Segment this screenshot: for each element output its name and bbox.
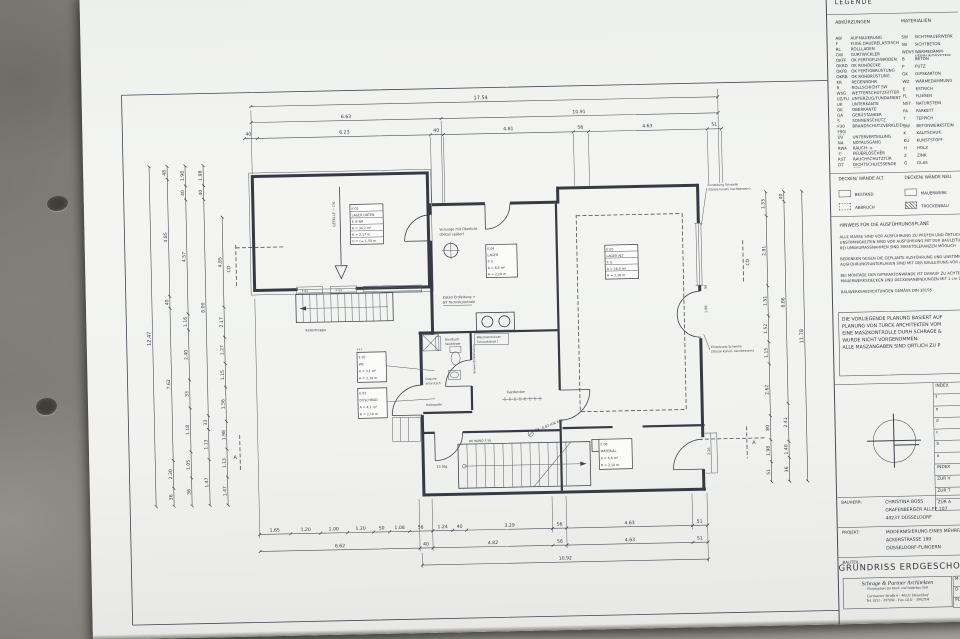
dim-label: 56 <box>418 525 424 531</box>
sheet-title: GRUNDRISS ERDGESCHOSS <box>839 561 959 573</box>
material-term: GLAS <box>917 159 960 167</box>
dim-label: 1.55 <box>760 199 766 209</box>
legend-col2-header: MATERIALIEN <box>901 18 931 24</box>
dim-label: 1.40 <box>783 444 789 454</box>
hinweis-line: BAUWERKSABDICHTUNGEN GEMÄSS DIN 18195 <box>841 287 960 295</box>
architect-stamp: Schrage & Partner Architekten Planungsbü… <box>843 576 953 609</box>
legend-new-header: DECKEN/ WÄNDE NEU. <box>904 175 952 181</box>
dim-label: 1.13 <box>203 439 209 449</box>
room-stamp-row: F: B NR <box>352 220 364 224</box>
dim-label: 12.47 <box>146 332 152 346</box>
dim-label: 36 <box>784 466 790 472</box>
dim-label: 1.16 <box>183 317 189 327</box>
projekt-block: PROJEKT: MODERNISIERUNG EINES MEHRFAMILI… <box>838 525 960 558</box>
dim-label: 2.40 <box>183 350 189 360</box>
dim-label: 4.57 <box>181 252 187 262</box>
room-stamp-row: E 06 <box>600 442 607 446</box>
dim-label: 1.52 <box>763 324 769 334</box>
room-stamp-row: MATERIAL <box>601 449 617 453</box>
slope-label: GEFÄLLE ~ 1% <box>331 201 337 227</box>
right-room-demolition-outline <box>576 214 686 412</box>
dim-label: 1.20 <box>300 527 310 533</box>
daten-note: Daten Erdleitung + <box>443 295 476 300</box>
dim-label: 4.63 <box>642 123 652 129</box>
waesche-label: Schutzklasse I <box>477 339 499 343</box>
note-line: ALLE MASZANGABEN SIND ORTLICH ZU P <box>842 342 960 352</box>
dim-label: 51 <box>697 536 703 542</box>
index-row: ZUR V <box>935 475 960 488</box>
material-key: G <box>904 160 917 168</box>
index-row: b <box>934 440 960 453</box>
dim-label: 80 <box>765 425 771 431</box>
dim-label: 36 <box>168 494 174 500</box>
projekt-city: DÜSSELDORF-FLINGERN <box>886 542 960 552</box>
dim-label: 2.30 <box>168 469 174 479</box>
dim-label: 51 <box>697 519 703 525</box>
kellertreppe-label: Kellertreppe <box>305 328 326 332</box>
north-symbol-box <box>835 382 935 497</box>
dim-label: 1.56 <box>220 399 226 409</box>
daten-note: NT Technikzentrale <box>443 300 475 305</box>
room-stamp-row: DUSCHBAD <box>359 398 378 402</box>
dimensions-bottom: 1.65 1.20 1.00 1.20 50 1.08 56 1.24 40 3… <box>260 519 709 569</box>
annotations: Vorsorge mit Oberlicht (Detail später) D… <box>439 182 757 460</box>
punch-hole-top <box>46 195 69 213</box>
window-label: F 01 <box>302 289 309 293</box>
legend-row: DTDICHTSCHLIESSENDE TÜR <box>838 161 904 168</box>
haltegriffe-label: Haltegriffe <box>426 403 442 407</box>
window-note: (Stürze künstl. nachbessern) <box>711 349 754 354</box>
legend-title: LEGENDE <box>835 0 873 7</box>
garderobe-label: Garderobe <box>507 390 525 394</box>
dim-label: 6.62 <box>335 543 345 549</box>
dim-label: 56 <box>557 522 563 528</box>
dim-label: 8.86 <box>780 297 786 307</box>
room-stamp-row: WC <box>359 362 365 366</box>
room-stamp-row: H = 2,10 m <box>607 273 625 277</box>
room-stamp-row: A = 34,2 m² <box>352 226 372 230</box>
dim-label: 6.23 <box>339 129 349 135</box>
dim-label: 51 <box>766 469 772 475</box>
room-stamp-row: F: E <box>607 260 613 264</box>
dim-label: 1.98 <box>766 446 772 456</box>
room-stamp-row: E 02 <box>359 355 366 359</box>
legend-panel: LEGENDE ABKÜRZUNGEN MATERIALIEN AWAUFMAU… <box>826 0 960 624</box>
room-stamp-row: F: E <box>488 260 494 264</box>
dim-label: 48 <box>162 170 168 176</box>
dim-label: 17.54 <box>473 95 487 101</box>
index-row: INDEX <box>935 463 960 476</box>
projekt-label: PROJEKT: <box>842 530 860 535</box>
index-row: INDEX <box>933 382 960 395</box>
laundry-appliances: Wäschetrockner Schutzklasse I <box>474 312 515 345</box>
mauerwerk-swatch <box>905 189 917 196</box>
dusche-label: antirutsch <box>426 381 441 385</box>
room-stamp-row: H = 2,17 m <box>352 232 370 236</box>
room-stamp-row: E 01 <box>351 207 358 211</box>
plan-sheet: 17.54 6.63 10.91 40 6.23 40 4.81 56 4.63… <box>79 0 960 639</box>
dim-label: 40 <box>423 541 429 547</box>
abbruch-label: ABBRUCH <box>855 205 875 210</box>
dim-label: 1.15 <box>220 370 226 380</box>
handtuch-label: heizkörper <box>445 342 462 346</box>
dimensions-top: 17.54 6.63 10.91 40 6.23 40 4.81 56 4.63… <box>244 90 722 138</box>
room-stamp-row: LAGER <box>487 253 499 257</box>
dim-label: 56 <box>577 125 583 131</box>
planning-note-box: DIE VORLIEGENDE PLANUNG BASIERT AUF PLAN… <box>838 310 960 377</box>
index-table: INDEXfedcbaINDEXZUR VZUR TZUR A <box>933 381 960 511</box>
dim-label: 40 <box>457 524 463 530</box>
plan-number-row: PLAN <box>953 597 960 608</box>
stair-count-label: 13 Stg <box>436 465 447 469</box>
trockenbau-swatch <box>905 202 917 209</box>
punch-hole-bottom <box>35 397 58 417</box>
dim-label: 4.85 <box>217 257 223 267</box>
scale-row: M <box>953 575 960 587</box>
section-label-cd: CD <box>745 258 751 265</box>
wall-dim-label: 2.26 <box>707 447 711 455</box>
wall-dim-label: 1.88 <box>704 305 708 313</box>
dim-label: 4.81 <box>503 126 513 132</box>
hinweis-title: HINWEIS FÜR DIE AUSFÜHRUNGSPLÄNE <box>839 221 929 228</box>
hinweis-text: ALLE MASSE SIND VOR AUSFÜHRUNG ZU PRÜFEN… <box>840 232 960 295</box>
stamp-plus: (+) <box>357 347 362 351</box>
dim-label: 6.63 <box>341 114 351 120</box>
room-stamp-row: A = 8,6 m² <box>488 266 506 270</box>
room-stamp-row: A = 6,8 m² <box>601 456 619 460</box>
wall-dim-label: 56 <box>704 285 708 289</box>
room-stamp-row: U = ca. 1,50 m <box>352 239 376 244</box>
index-row: c <box>934 428 960 441</box>
room-stamp-row: A = 4,2 m² <box>360 405 378 409</box>
dim-label: 1.13 <box>222 458 228 468</box>
dim-label: 51 <box>711 122 717 128</box>
bauherr-block: BAUHERR: CHRISTINA BOSS GRAFENBERGER ALL… <box>837 495 960 528</box>
architect-phone: Tel. 0211 - 397004 - Fax. 0211 - 3982704 <box>844 597 952 604</box>
date-row: D <box>953 586 960 597</box>
dim-label: 7.62 <box>166 379 172 389</box>
dim-label: 33 <box>184 391 190 397</box>
room-stamp-row: E 04 <box>487 247 494 251</box>
dim-label: 1.98 <box>198 170 204 180</box>
room-stamp-row: E 03 <box>359 391 366 395</box>
dimensions-left: 12.47 48 4.85 40 7.62 2.30 36 1.98 40 4.… <box>143 165 229 507</box>
window-label: F 02 <box>336 288 343 292</box>
dim-label: 1.47 <box>222 486 228 496</box>
trockenbau-label: TROCKENBAU <box>921 203 949 208</box>
room-stamp-row: A = 3,1 m² <box>359 369 377 373</box>
dim-label: 40 <box>164 299 170 305</box>
oberlicht-note: (Detail später) <box>439 232 464 237</box>
index-row: a <box>935 452 960 465</box>
mauerwerk-label: MAUERWERK <box>921 190 947 195</box>
dim-label: 11.78 <box>799 329 805 343</box>
dim-label: 1.24 <box>437 524 447 530</box>
oberlicht-note: Vorsorge mit Oberlicht <box>439 227 478 232</box>
scale-date-plan-column: M D PLAN <box>953 575 960 608</box>
dim-label: 40 <box>778 193 784 199</box>
architect-subtitle: Planungsbüro für Hoch- und Städtebau GbR <box>844 586 952 592</box>
dim-label: 1.00 <box>328 526 338 532</box>
dim-label: 4.63 <box>624 520 634 526</box>
dim-label: 4.85 <box>163 232 169 242</box>
dim-label: 2.81 <box>761 246 767 256</box>
dim-label: 40 <box>245 132 251 138</box>
index-row: e <box>934 405 960 418</box>
section-label-a: A <box>752 440 756 446</box>
index-row: d <box>934 417 960 430</box>
dim-label: 1.98 <box>180 171 186 181</box>
legend-col1-header: ABKÜRZUNGEN <box>835 20 870 26</box>
dim-label: 8.00 <box>200 302 206 312</box>
material-list: SWSICHTMAUERWERKSBSICHTBETONWDVSWÄRMEDÄM… <box>901 34 960 168</box>
dim-label: 40 <box>180 190 186 196</box>
section-label-a: A <box>233 455 237 461</box>
legend-row: GGLAS <box>904 159 960 168</box>
bestand-label: BESTAND <box>855 192 874 197</box>
photo-background: ’ 17.54 6.63 10.91 <box>0 0 960 639</box>
dim-label: 33 <box>203 420 209 426</box>
room-stamp-row: LAGER ALT <box>606 254 623 258</box>
dim-label: 3.29 <box>504 523 514 529</box>
abbreviation-list: AWAUFMAUERUNGFFUGE DAUERELASTISCHRLROLLL… <box>835 35 904 168</box>
dim-label: 10.91 <box>572 109 585 115</box>
dim-label: 56 <box>557 539 563 545</box>
room-stamp-row: H = 2,10 m <box>360 412 378 416</box>
room-stamp-row: A = 26,4 m² <box>607 267 627 271</box>
dim-label: 1.05 <box>186 460 192 470</box>
dim-label: 1.27 <box>219 345 225 355</box>
dim-label: 36 <box>186 489 192 495</box>
dim-label: 1.18 <box>185 425 191 435</box>
dim-label: 10.92 <box>559 555 572 561</box>
dim-label: 1.20 <box>355 526 365 532</box>
dim-label: 2.41 <box>783 417 789 427</box>
bauherr-label: BAUHERR: <box>841 500 862 505</box>
wall-height-label: OK WAND 7,50 <box>469 439 491 443</box>
room-stamp-row: H = 2,10 m <box>359 376 377 380</box>
legend-old-header: DECKEN/ WÄNDE ALT. <box>838 176 884 182</box>
dim-label: 4.82 <box>488 540 498 546</box>
abbr-key: DT <box>838 162 853 168</box>
dim-label: 4.63 <box>625 537 635 543</box>
dim-label: 1.08 <box>394 525 404 531</box>
dim-label: 1.65 <box>270 528 280 534</box>
vorwand-label: Vorwandinstallation <box>472 344 477 374</box>
dim-label: 2.62 <box>764 385 770 395</box>
room-stamp-row: H = 2,10 m <box>488 272 506 276</box>
window-note: (Stürze künstl. nachbessern) <box>708 187 751 192</box>
section-label-cd: CD <box>226 265 232 272</box>
index-row: f <box>933 393 960 406</box>
dim-label: 2.17 <box>219 317 225 327</box>
room-top-left: GEFÄLLE ~ 1% <box>234 169 433 296</box>
room-stamp-row: LAGER UNTEN <box>352 213 375 217</box>
dim-label: 50 <box>379 525 385 531</box>
abbruch-swatch <box>839 203 851 210</box>
dim-label: 1.98 <box>221 430 227 440</box>
bestand-swatch <box>839 190 851 197</box>
dim-label: 1.51 <box>762 296 768 306</box>
dim-label: 1.15 <box>763 348 769 358</box>
dim-label: 40 <box>433 128 439 134</box>
bauherr-city: 40237 DÜSSELDORF <box>885 513 947 522</box>
room-stamp-row: E 05 <box>606 247 613 251</box>
dimensions-right: 1.55 2.81 1.51 1.52 1.15 2.62 80 1.98 51… <box>760 191 808 482</box>
abbr-term: DICHTSCHLIESSENDE TÜR <box>853 161 904 168</box>
room-stamp-row: H = 2,10 m <box>601 463 619 467</box>
dim-label: 1.47 <box>204 477 210 487</box>
dim-label: 40 <box>198 190 204 196</box>
